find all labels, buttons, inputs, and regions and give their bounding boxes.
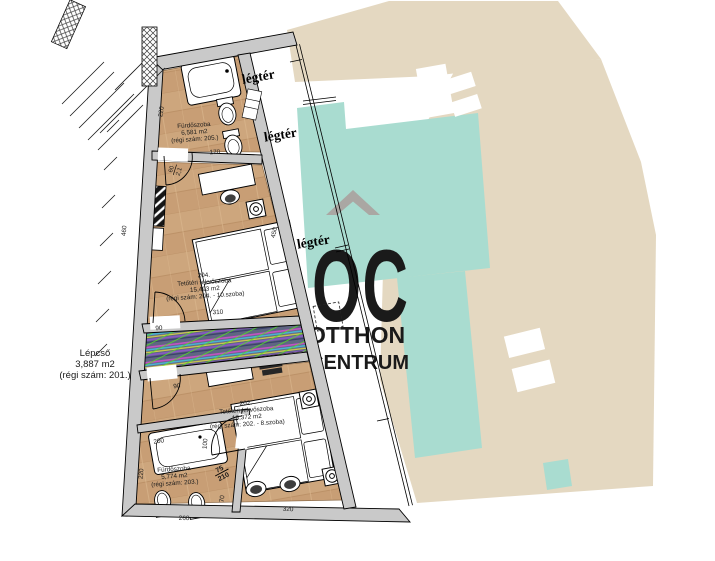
dim-bath-bottom-side: 220: [137, 468, 145, 480]
dim-bath-top-wall: 170: [209, 149, 220, 157]
wall-bottom: [122, 504, 410, 522]
dim-stair-opening-top: 90: [155, 325, 163, 333]
tub-drain-dot-2: [198, 435, 201, 438]
airspace-label-2: légtér: [263, 125, 298, 145]
floor-plan-page: OC OTTHON CENTRUM: [0, 0, 715, 561]
dim-left-wall: 460: [120, 225, 128, 237]
chimney-column: [142, 27, 157, 86]
dim-bottom-edge-left: 260: [179, 515, 190, 522]
stairwell-area: 3,887 m2: [75, 359, 115, 370]
dim-stair-length: 310: [212, 309, 223, 317]
column-202-a: [299, 389, 319, 409]
stairwell-label: Lépcső 3,887 m2 (régi szám: 201.): [59, 348, 130, 381]
stairwell-old-number: (régi szám: 201.): [59, 370, 130, 381]
stairwell-name: Lépcső: [80, 348, 111, 359]
dim-stair-opening-bottom: 90: [173, 383, 181, 391]
tub-drain-dot: [225, 69, 229, 73]
column-204-a: [246, 199, 266, 219]
party-wall-strip: [51, 0, 85, 49]
roof-teal-small: [543, 459, 572, 490]
left-wall-ticks: [95, 120, 119, 356]
floor-plan-drawing: OC OTTHON CENTRUM: [0, 0, 715, 561]
dim-bath-bottom-right: 100: [201, 438, 209, 450]
dim-bath-bottom-lower: 70: [219, 494, 227, 502]
watermark-word-top: OTTHON: [308, 322, 405, 348]
dim-bottom-edge-right: 320: [283, 506, 294, 514]
